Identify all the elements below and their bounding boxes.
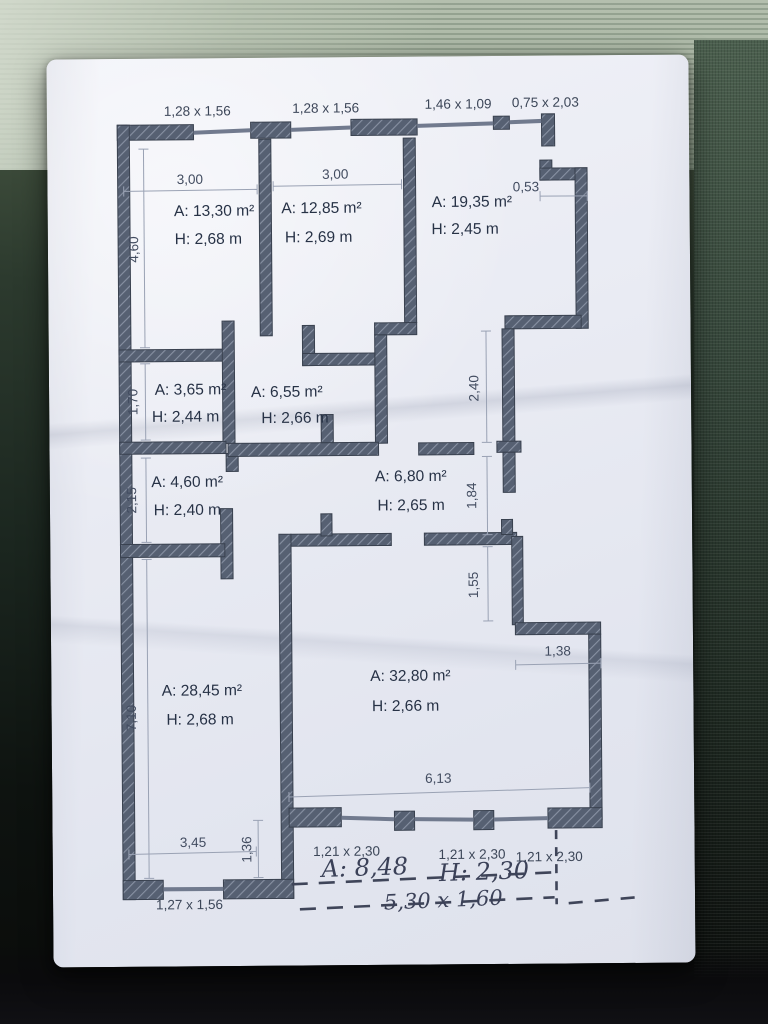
room-6-height-label: H: 2,40 m <box>154 502 221 520</box>
wall-room9-bottom-left-block <box>289 808 341 827</box>
room-7-height-label: H: 2,65 m <box>377 497 444 515</box>
bottom-left-window-label: 1,27 x 1,56 <box>156 897 223 913</box>
wall-jog-block <box>497 441 521 452</box>
wall-room9-bottom-pillar-1 <box>394 811 414 830</box>
wall-184-vertical <box>503 452 515 492</box>
room-4-height-label: H: 2,44 m <box>152 408 219 426</box>
top-window-label-4: 0,75 x 2,03 <box>512 95 579 111</box>
dim-room9-width: 6,13 <box>425 771 451 786</box>
window-line-bottom-2 <box>415 819 474 820</box>
floor-plan-paper: 1,28 x 1,56 1,28 x 1,56 1,46 x 1,09 0,75… <box>46 54 695 967</box>
dim-bottom-step: 1,36 <box>239 836 254 862</box>
room-1-area-label: A: 13,30 m² <box>174 202 254 220</box>
wall-room3-bottom <box>505 315 581 329</box>
dim-right-1-55: 1,55 <box>466 572 481 598</box>
handwritten-balcony-area: A: 8,48 <box>319 852 409 883</box>
wall-bottom-left-block-2 <box>223 879 293 899</box>
room-5-area-label: A: 6,55 m² <box>251 384 323 402</box>
floor-plan-drawing: 1,28 x 1,56 1,28 x 1,56 1,46 x 1,09 0,75… <box>46 54 695 967</box>
wall-top-pillar-3 <box>493 116 509 129</box>
wall-room9-top-notch-left <box>321 514 332 536</box>
wall-room8-top <box>120 544 224 558</box>
dim-right-2-40: 2,40 <box>466 375 481 401</box>
window-line-top-3 <box>417 123 493 126</box>
top-window-label-3: 1,46 x 1,09 <box>425 96 492 112</box>
wall-room8-room9-divider <box>279 534 294 898</box>
room-9-area-label: A: 32,80 m² <box>370 667 450 685</box>
dim-left-4-60: 4,60 <box>126 236 141 262</box>
wall-room9-top-notch-right <box>501 519 512 534</box>
wall-room1-bottom <box>119 349 223 362</box>
dim-top-right-step: 0,53 <box>513 179 539 194</box>
wall-hook-horizontal <box>375 323 417 335</box>
dim-left-1-70: 1,70 <box>125 389 140 415</box>
room-9-height-label: H: 2,66 m <box>372 698 439 716</box>
textured-fabric-right-strip <box>694 40 768 980</box>
wall-room1-room2-divider <box>259 139 273 336</box>
wall-room9-top-left <box>291 533 391 546</box>
room-2-height-label: H: 2,69 m <box>285 229 352 247</box>
wall-room2-bottom <box>303 353 375 366</box>
wall-top-right-end <box>541 114 554 146</box>
room-6-area-label: A: 4,60 m² <box>151 474 223 492</box>
dim-left-2-15: 2,15 <box>124 487 139 513</box>
dim-room8-width: 3,45 <box>180 835 206 850</box>
room-5-height-label: H: 2,66 m <box>261 410 328 428</box>
dim-right-1-84: 1,84 <box>464 482 479 509</box>
dim-room2-width: 3,00 <box>322 167 348 182</box>
window-line-bottom-1 <box>341 817 394 819</box>
room-7-area-label: A: 6,80 m² <box>375 468 447 486</box>
room-3-height-label: H: 2,45 m <box>431 221 498 239</box>
wall-top-pillar-1 <box>251 122 291 138</box>
handwritten-notes: A: 8,48 H: 2,30 5,30 x 1,60 <box>319 851 530 915</box>
window-line-bottom-3 <box>494 818 548 819</box>
wall-corridor-top-right <box>419 442 474 454</box>
dim-left-7-10: 7,10 <box>124 705 139 731</box>
handwritten-balcony-size: 5,30 x 1,60 <box>383 885 503 915</box>
room-8-height-label: H: 2,68 m <box>166 711 233 729</box>
wall-room4-room6-divider <box>120 441 226 454</box>
wall-room3-right <box>575 168 588 329</box>
dim-right-step: 1,38 <box>544 643 570 658</box>
wall-room2-room3-divider <box>403 138 416 323</box>
room-4-area-label: A: 3,65 m² <box>155 381 227 399</box>
wall-bottom-right-corner <box>548 808 602 828</box>
wall-right-exterior-lower <box>589 634 602 820</box>
dim-room1-width: 3,00 <box>177 172 203 187</box>
window-line-top-4 <box>509 121 541 122</box>
room-2-area-label: A: 12,85 m² <box>281 200 361 218</box>
window-line-top-1 <box>193 130 250 132</box>
wall-top-pillar-2 <box>351 119 417 136</box>
handwritten-balcony-height: H: 2,30 <box>437 856 529 887</box>
wall-room9-bottom-pillar-2 <box>474 810 494 829</box>
top-window-label-2: 1,28 x 1,56 <box>292 100 359 116</box>
wall-corridor-top-left <box>228 442 379 456</box>
wall-room9-right-upper <box>512 536 524 624</box>
room-3-area-label: A: 19,35 m² <box>432 193 512 211</box>
wall-step138-horizontal <box>515 622 600 635</box>
top-window-label-1: 1,28 x 1,56 <box>164 103 231 119</box>
room-8-area-label: A: 28,45 m² <box>162 682 242 700</box>
room-1-height-label: H: 2,68 m <box>175 231 242 249</box>
window-line-top-2 <box>291 127 351 129</box>
wall-240-vertical <box>502 329 515 444</box>
wall-hook-vertical <box>375 335 388 443</box>
